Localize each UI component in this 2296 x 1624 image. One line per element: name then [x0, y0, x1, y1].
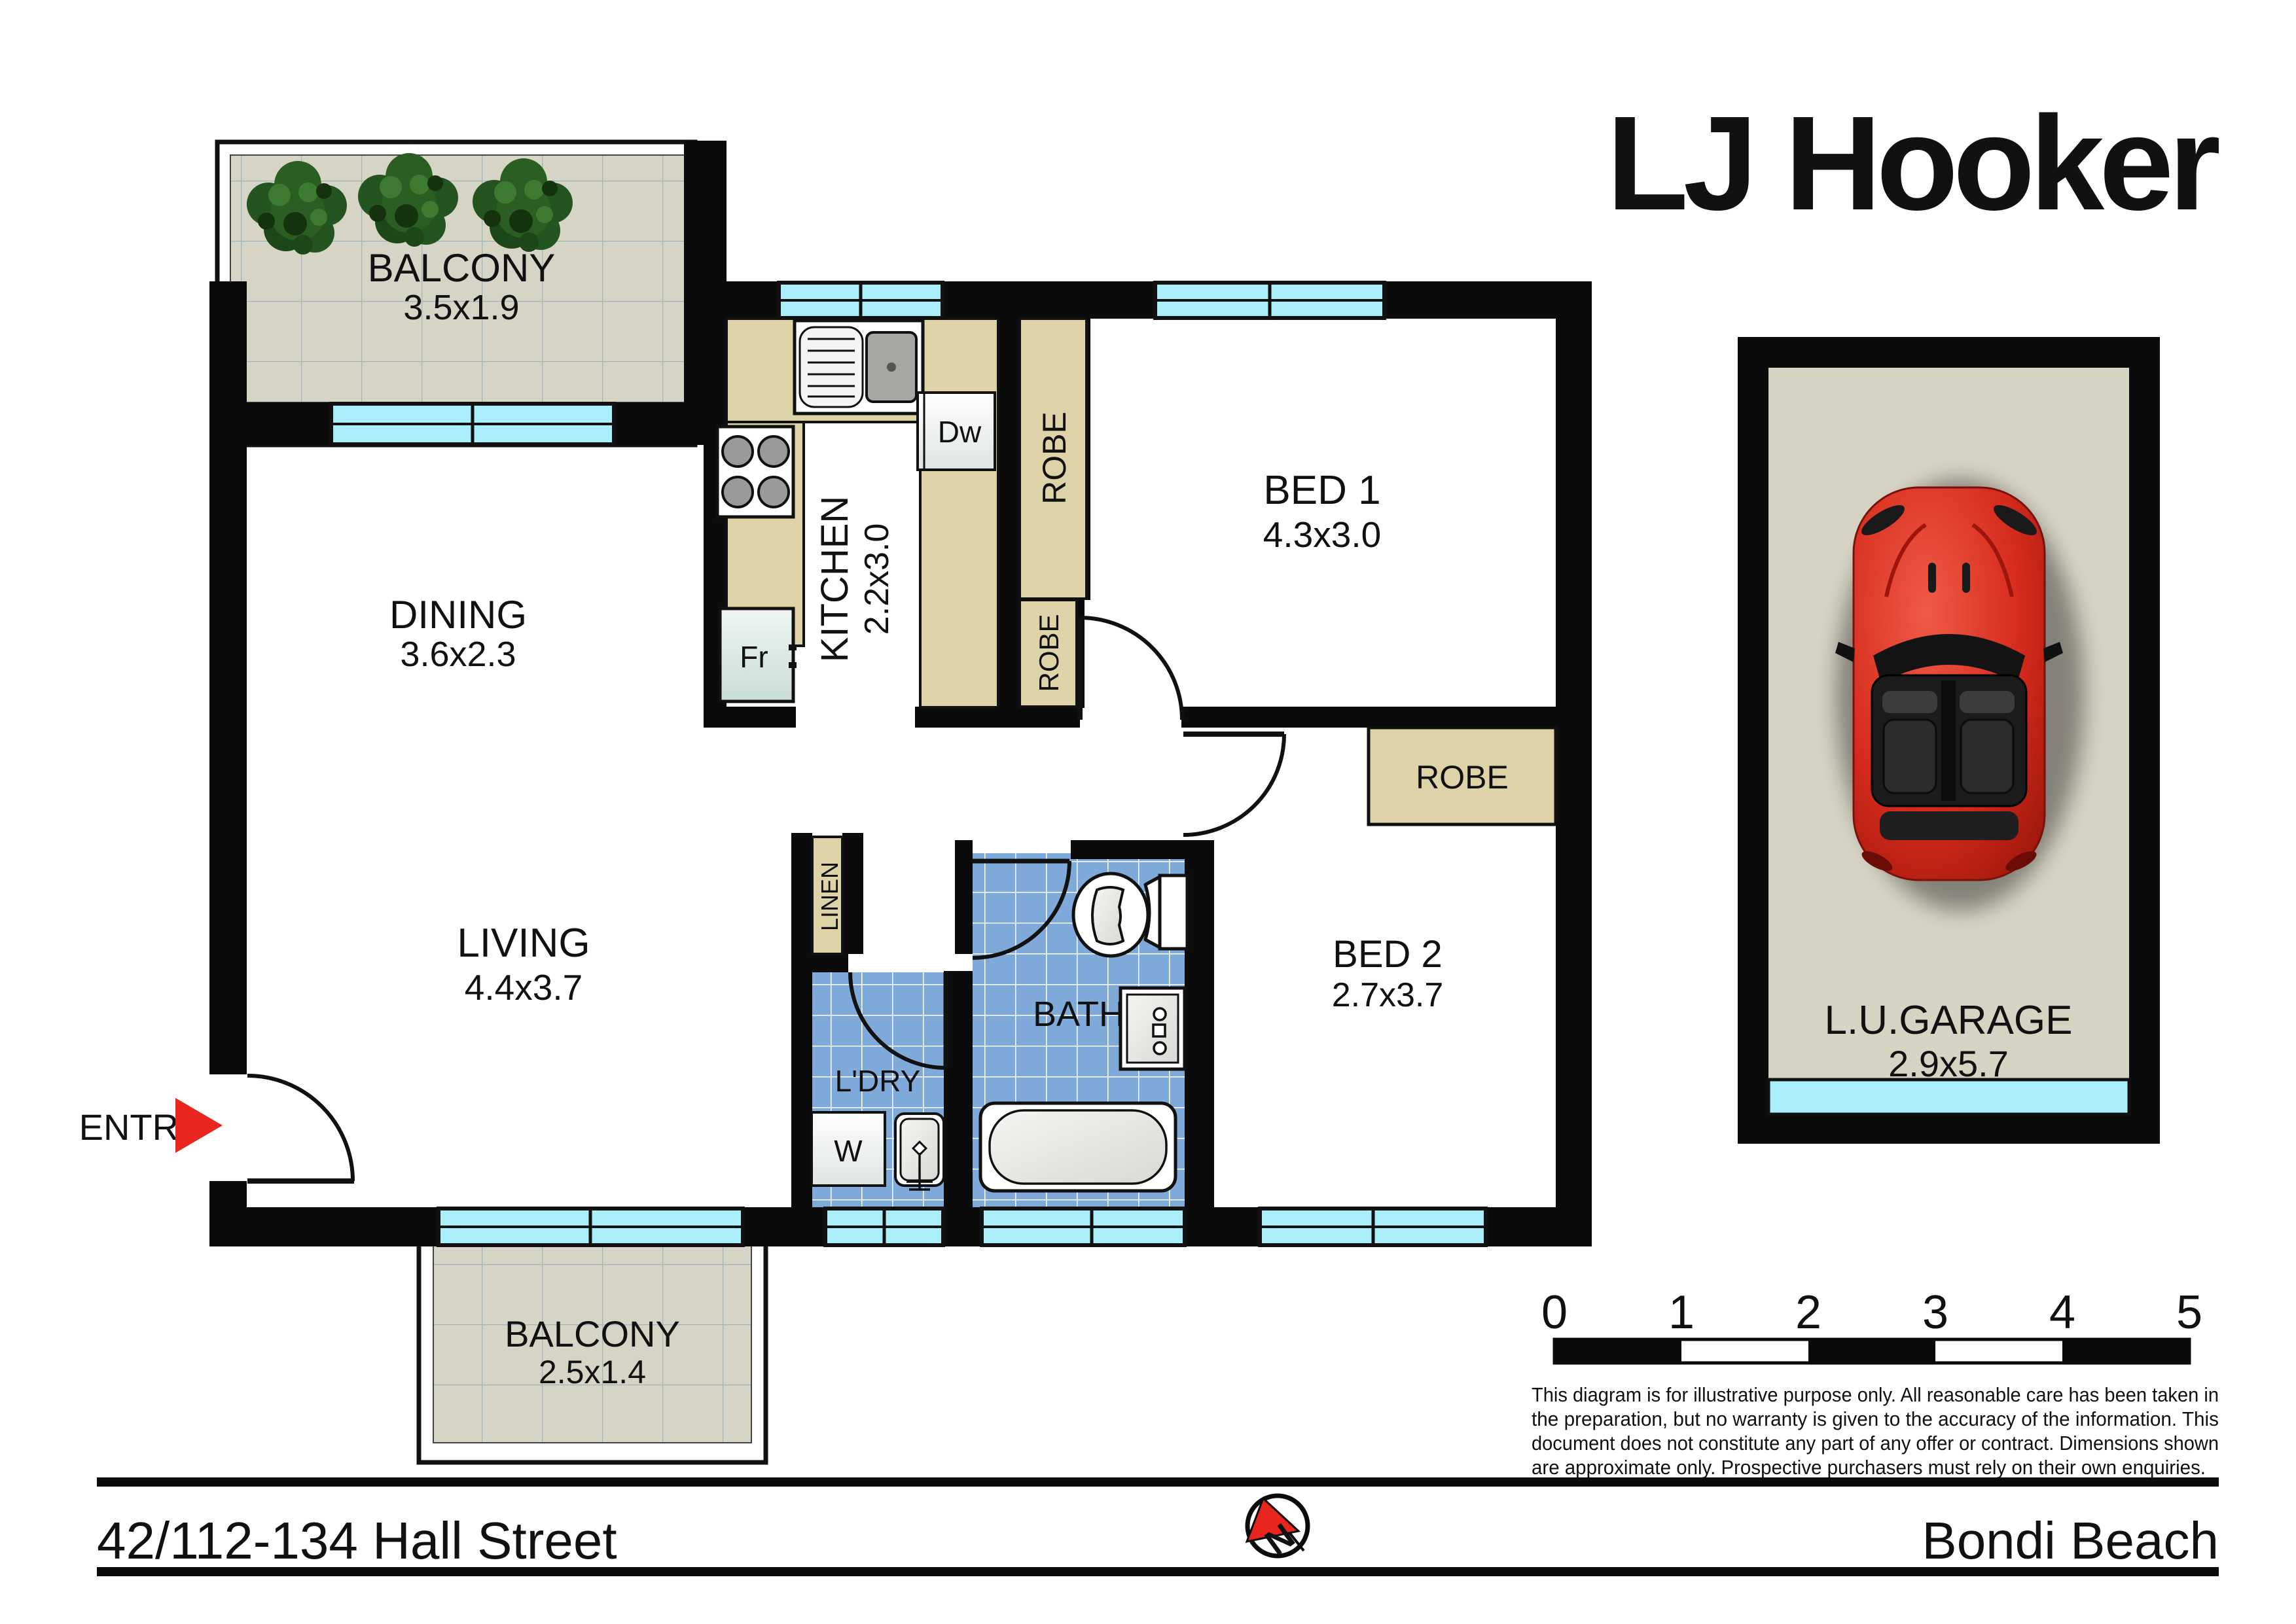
scale-tick: 4 [2049, 1286, 2075, 1339]
wall-kitchen-robe [999, 319, 1020, 707]
disclaimer: This diagram is for illustrative purpose… [1532, 1383, 2219, 1479]
scale-bar: 0 1 2 3 4 5 [1541, 1286, 2202, 1363]
wall-left-upper [209, 281, 247, 1074]
scale-tick: 2 [1795, 1286, 1821, 1339]
floorplan-canvas: BALCONY 3.5x1.9 BALCONY 2.5x1.4 [0, 0, 2296, 1624]
footer-address: 42/112-134 Hall Street [97, 1511, 617, 1570]
wall-ldry-bath [944, 971, 973, 1207]
window-bed2 [1260, 1209, 1486, 1245]
balcony-bottom-dims: 2.5x1.4 [539, 1354, 646, 1390]
robe-lower-label: ROBE [1033, 614, 1064, 692]
robe-bed2-label: ROBE [1416, 759, 1509, 796]
dishwasher-label: Dw [938, 415, 982, 449]
wall-ldry-top [791, 954, 848, 972]
garage-label: L.U.GARAGE [1825, 998, 2073, 1043]
stove [717, 427, 793, 517]
linen-label: LINEN [816, 862, 843, 931]
kitchen: Fr Dw KITCHEN 2.2x3.0 [717, 319, 998, 707]
brand-logo: LJ Hooker [1607, 88, 2219, 238]
entry-door [247, 1076, 354, 1181]
dining-label: DINING [389, 593, 527, 637]
ldry-label: L'DRY [835, 1064, 921, 1098]
scale-tick: 0 [1541, 1286, 1568, 1339]
toilet [1073, 874, 1187, 956]
footer-suburb: Bondi Beach [1922, 1511, 2219, 1570]
window-dining [331, 404, 614, 444]
kitchen-dims: 2.2x3.0 [858, 523, 896, 635]
fridge-label: Fr [740, 640, 768, 674]
wall-balcony-right [684, 141, 726, 445]
footer: 42/112-134 Hall Street Bondi Beach N [97, 1477, 2219, 1576]
kitchen-counter-right [920, 319, 998, 707]
wall-bath-hinge-stub [955, 840, 973, 954]
scale-tick: 1 [1668, 1286, 1695, 1339]
balcony-bottom: BALCONY 2.5x1.4 [419, 1240, 766, 1462]
kitchen-label: KITCHEN [814, 496, 856, 663]
garage: L.U.GARAGE 2.9x5.7 [1738, 337, 2160, 1144]
wall-linen-right [842, 833, 863, 954]
living-label: LIVING [457, 921, 590, 966]
robe-upper-label: ROBE [1036, 412, 1073, 504]
bed2-door [1183, 734, 1284, 835]
wall-bath-top [1071, 840, 1185, 859]
window-kitchen [779, 283, 942, 318]
scale-tick: 3 [1922, 1286, 1948, 1339]
window-ldry [825, 1209, 943, 1245]
wall-wet-left [791, 833, 812, 1207]
wall-kitchen-bottom-right [915, 707, 1080, 728]
dishwasher: Dw [918, 393, 995, 470]
bed1-label: BED 1 [1263, 468, 1380, 513]
disclaimer-line: document does not constitute any part of… [1532, 1432, 2219, 1455]
washer-label: W [834, 1134, 863, 1168]
sink [795, 321, 923, 414]
bed1-door [1080, 618, 1182, 720]
balcony-top-dims: 3.5x1.9 [403, 288, 519, 327]
dining-dims: 3.6x2.3 [400, 635, 516, 674]
car-icon [1835, 487, 2063, 880]
window-living [439, 1209, 743, 1245]
laundry-fixtures: W [812, 1112, 944, 1190]
wall-kitchen-bottom-left [704, 707, 796, 728]
living-dims: 4.4x3.7 [465, 967, 583, 1008]
washer: W [812, 1112, 885, 1186]
bathtub [980, 1103, 1175, 1191]
bath-label: BATH [1033, 995, 1124, 1034]
balcony-top-label: BALCONY [368, 246, 556, 290]
laundry-tub [895, 1114, 944, 1190]
garage-door [1768, 1080, 2129, 1114]
wall-bath-bed2 [1185, 840, 1214, 1207]
bed2-dims: 2.7x3.7 [1332, 976, 1444, 1014]
window-bath [982, 1209, 1185, 1245]
bed2-label: BED 2 [1333, 933, 1443, 976]
garage-dims: 2.9x5.7 [1888, 1043, 2009, 1084]
balcony-top: BALCONY 3.5x1.9 [217, 142, 695, 445]
footer-rule-top [97, 1477, 2219, 1487]
entry: ENTRY [79, 1098, 223, 1153]
scale-tick: 5 [2176, 1286, 2202, 1339]
north-compass-icon: N [1247, 1496, 1308, 1563]
window-bed1 [1155, 283, 1384, 318]
disclaimer-line: are approximate only. Prospective purcha… [1532, 1456, 2206, 1479]
balcony-bottom-label: BALCONY [505, 1313, 680, 1354]
bed1-dims: 4.3x3.0 [1263, 514, 1381, 555]
floorplan-page: BALCONY 3.5x1.9 BALCONY 2.5x1.4 [0, 0, 2296, 1624]
fridge: Fr [720, 609, 797, 701]
disclaimer-line: the preparation, but no warranty is give… [1532, 1407, 2219, 1430]
wall-right [1556, 281, 1592, 1246]
disclaimer-line: This diagram is for illustrative purpose… [1532, 1383, 2219, 1406]
vanity [1121, 988, 1185, 1069]
wall-bed1-bottom [1181, 707, 1592, 728]
